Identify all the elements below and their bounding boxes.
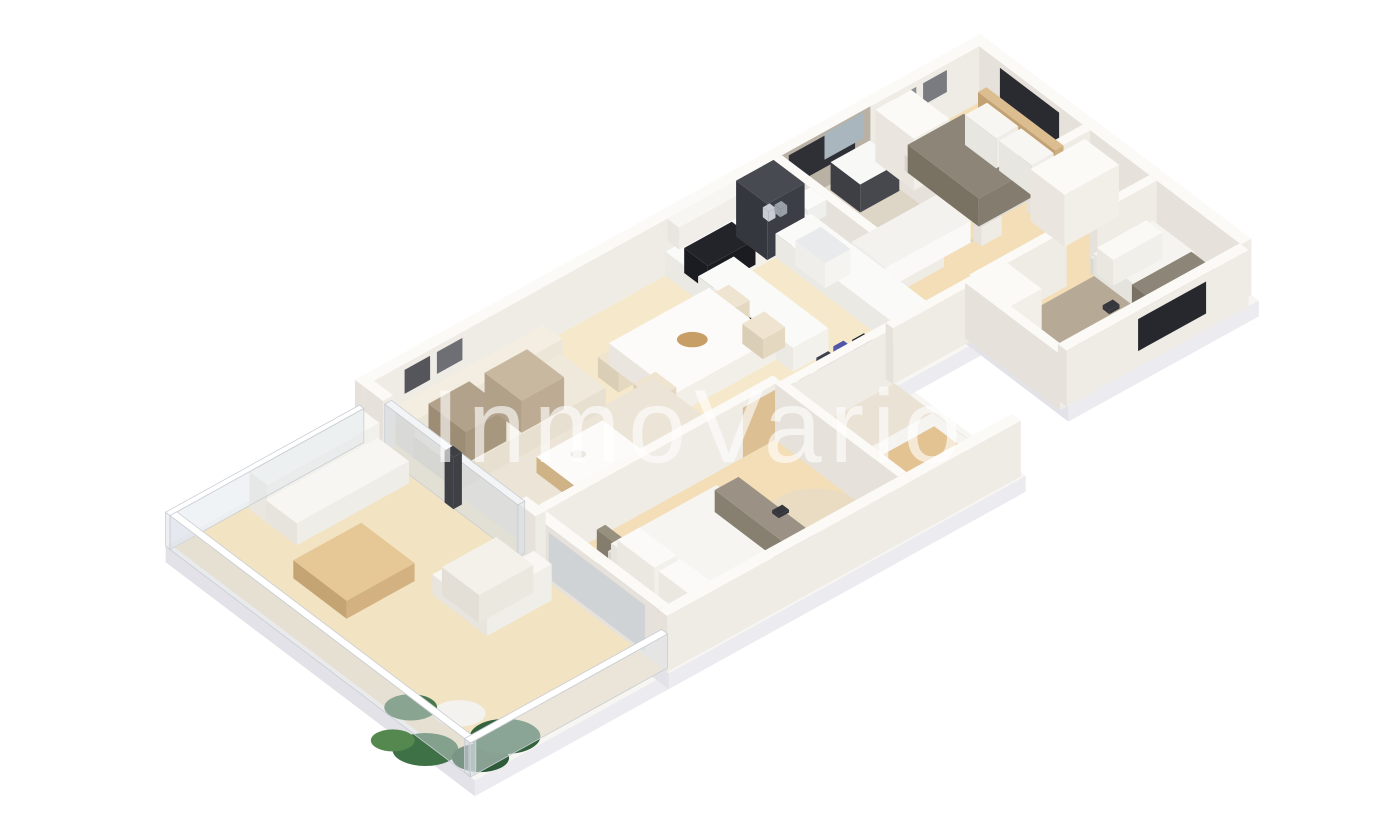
floor-plan-image: InmoVario bbox=[0, 0, 1400, 819]
dining-bowl bbox=[677, 332, 708, 347]
door-mullion-living bbox=[445, 446, 462, 509]
coffee-table-dish bbox=[571, 450, 586, 458]
floor-plan-render: InmoVario bbox=[0, 0, 1400, 819]
terrace-plant-d bbox=[371, 729, 415, 751]
